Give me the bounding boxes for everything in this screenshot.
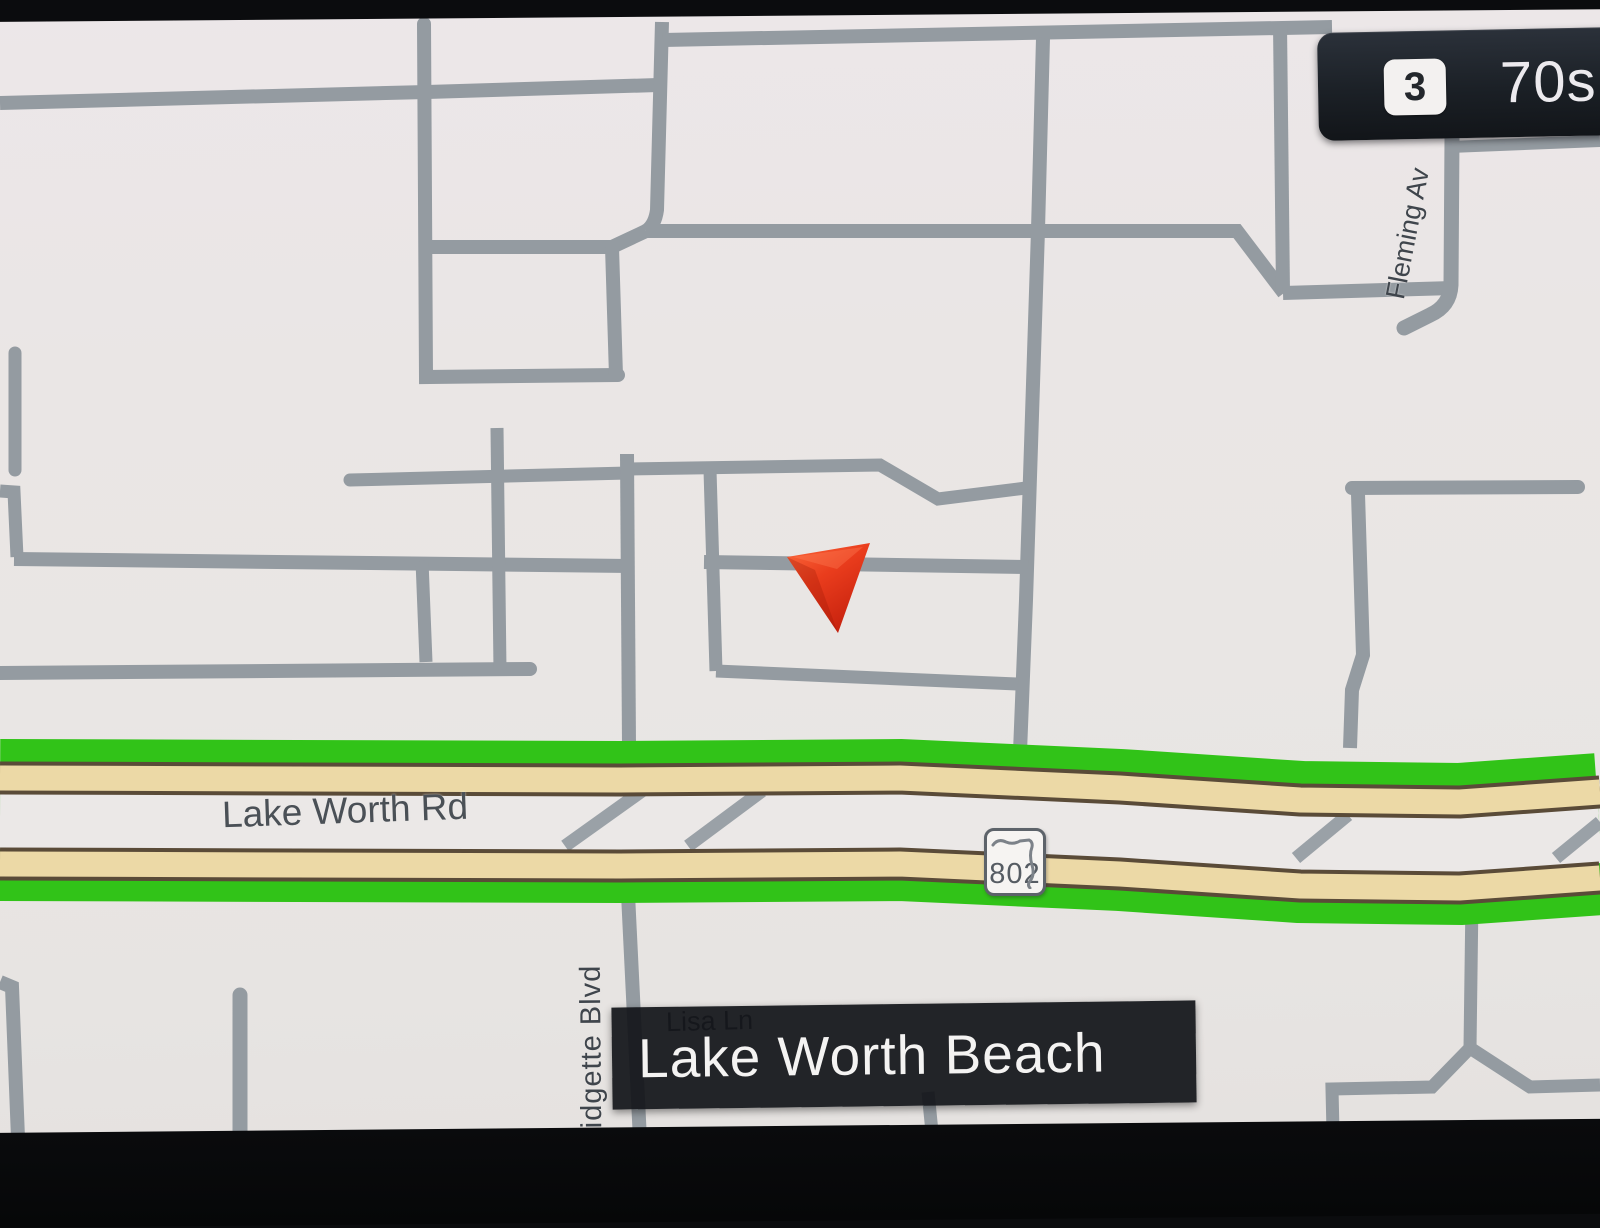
status-info-text: 70s <box>1499 48 1597 117</box>
vehicle-position-arrow <box>775 535 895 655</box>
exit-number-text: 3 <box>1403 64 1426 109</box>
nav-screen: { "status_bar": { "badge": "3", "info": … <box>0 0 1600 1200</box>
guidance-status-bar[interactable]: 3 70s <box>1317 27 1600 141</box>
screen-bezel-bottom <box>0 1118 1600 1228</box>
route-shield-802: 802 <box>984 828 1046 896</box>
city-name-text: Lake Worth Beach <box>612 1021 1106 1091</box>
exit-number-badge: 3 <box>1384 58 1447 115</box>
city-name-overlay: Lake Worth Beach <box>611 1000 1196 1109</box>
street-label-lake-worth-rd: Lake Worth Rd <box>221 786 468 837</box>
florida-outline-icon <box>989 833 1039 889</box>
